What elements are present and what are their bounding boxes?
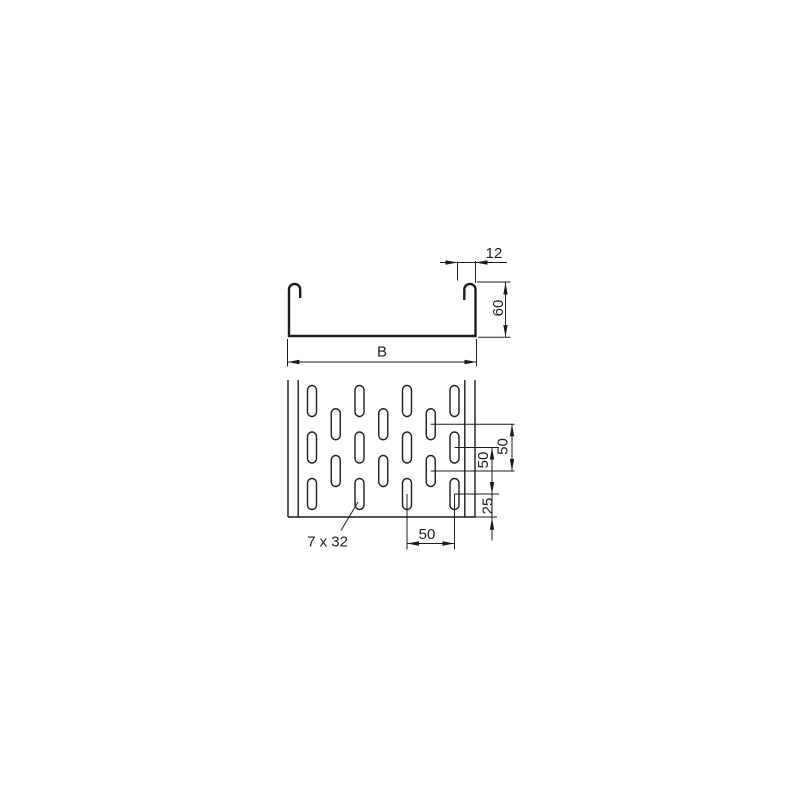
slot (379, 409, 388, 440)
plan-view: 50 50 25 (288, 380, 515, 551)
arrowhead-down (503, 325, 507, 337)
slot (403, 432, 412, 463)
tray-profile-outline (289, 284, 476, 336)
dim-label-base-width: B (377, 344, 387, 361)
slot-size-label: 7 x 32 (307, 534, 348, 551)
dimension-flange-width: 12 (440, 245, 507, 283)
slot (308, 479, 317, 510)
cable-tray-drawing: 12 60 B (0, 0, 800, 800)
arrowhead-down (490, 482, 494, 494)
slot (331, 409, 340, 440)
cross-section-view: 12 60 B (288, 245, 511, 367)
slot (355, 432, 364, 463)
arrowhead-down (510, 459, 514, 471)
arrowhead-left (288, 360, 300, 364)
dimension-row-offset: 25 (476, 494, 497, 541)
arrowhead-up (503, 283, 507, 295)
slot (308, 432, 317, 463)
slot (308, 386, 317, 417)
leader-line (341, 502, 358, 531)
slot (355, 386, 364, 417)
slot (403, 386, 412, 417)
slot (450, 386, 459, 417)
dimension-base-width: B (288, 339, 477, 367)
dim-label-row-pitch-inner: 50 (475, 452, 492, 469)
arrowhead-right (446, 260, 458, 264)
arrowhead-right (443, 541, 455, 545)
arrowhead-up (510, 424, 514, 436)
dim-label-column-pitch: 50 (419, 526, 436, 543)
arrowhead-up (490, 518, 494, 530)
technical-drawing-page: 12 60 B (0, 0, 800, 800)
dim-label-side-height: 60 (490, 300, 507, 317)
dimension-side-height: 60 (477, 282, 511, 337)
slot (379, 456, 388, 487)
slot-pattern (308, 386, 460, 510)
dim-label-flange-width: 12 (486, 245, 503, 262)
arrowhead-right (465, 360, 477, 364)
dim-label-row-pitch-outer: 50 (495, 438, 512, 455)
arrowhead-left (407, 541, 419, 545)
dimension-column-pitch: 50 (407, 494, 455, 550)
dim-label-row-offset: 25 (480, 498, 497, 515)
slot (331, 456, 340, 487)
